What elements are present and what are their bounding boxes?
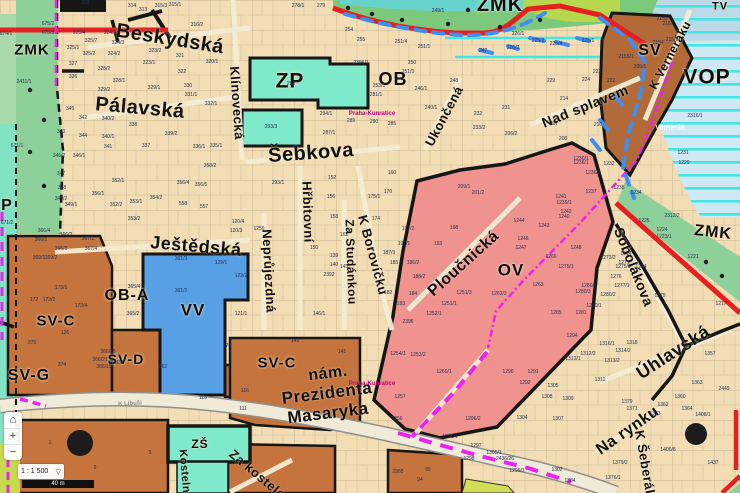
- zone-teal-south: [177, 462, 228, 493]
- scale-value: 1 : 1 500: [21, 468, 48, 475]
- black-block: [60, 0, 106, 12]
- scale-selector[interactable]: 1 : 1 500 ▽: [18, 464, 64, 479]
- zone-zs: [168, 426, 250, 462]
- scale-bar-label: 40 m: [51, 481, 64, 487]
- zone-zmk-left: [16, 0, 63, 234]
- zoom-in-button[interactable]: +: [4, 428, 22, 444]
- zone-zp-1: [250, 58, 368, 108]
- zoom-out-button[interactable]: −: [4, 444, 22, 460]
- map-stage[interactable]: ZMKPZPOBZMKSVTVVOPZMKOB-AVVSV-CSV-DSV-GS…: [0, 0, 740, 493]
- home-button[interactable]: ⌂: [4, 412, 22, 428]
- map-graphics: [0, 0, 740, 493]
- scale-bar: 40 m: [22, 480, 94, 488]
- chevron-down-icon[interactable]: ▽: [56, 468, 61, 476]
- map-toolbar: ⌂ + −: [4, 412, 22, 460]
- zone-zp-2: [242, 110, 302, 146]
